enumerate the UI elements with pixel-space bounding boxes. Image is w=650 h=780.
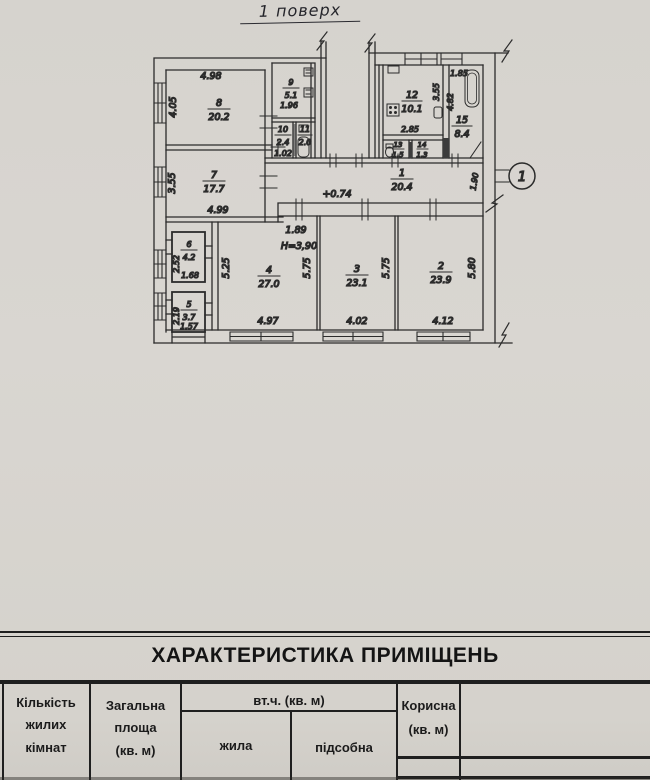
- dim-room2-right: 5.80: [467, 257, 478, 278]
- svg-text:1.5: 1.5: [392, 151, 404, 159]
- table-title: ХАРАКТЕРИСТИКА ПРИМІЩЕНЬ: [0, 644, 650, 668]
- floor-plan-drawing: 1 820.2 717.7 95.1 102.4 112.0 1210.1 13…: [0, 0, 650, 625]
- svg-text:4: 4: [266, 265, 272, 276]
- svg-text:7: 7: [211, 170, 217, 181]
- svg-text:27.0: 27.0: [258, 279, 279, 290]
- dim-room8-width: 4.98: [200, 71, 221, 82]
- dim-room10-sub: 1.02: [274, 149, 292, 158]
- svg-text:8: 8: [216, 98, 222, 109]
- svg-text:15: 15: [456, 115, 468, 126]
- svg-text:3.7: 3.7: [183, 313, 197, 322]
- dim-room6-width: 1.68: [181, 271, 199, 280]
- svg-text:5: 5: [186, 300, 191, 309]
- svg-text:23.1: 23.1: [346, 278, 367, 289]
- dim-room12-height: 3.55: [432, 83, 441, 101]
- dim-room5-width: 1.57: [180, 322, 199, 331]
- room-5-label: 53.7: [181, 300, 197, 322]
- svg-text:1: 1: [399, 168, 405, 179]
- room-1-label: 120.4: [391, 168, 413, 193]
- table-hline-useful-1: [396, 756, 650, 759]
- room-14-label: 141.3: [416, 141, 428, 159]
- stove-icon: [387, 104, 399, 116]
- room-2-label: 223.9: [430, 261, 452, 286]
- svg-text:2.4: 2.4: [277, 138, 290, 147]
- room-3-label: 323.1: [346, 264, 368, 289]
- cabinet-icon: [388, 66, 399, 73]
- section-marker-label: 1: [518, 170, 526, 185]
- svg-text:11: 11: [300, 125, 310, 134]
- dim-room2-width: 4.12: [432, 316, 453, 327]
- svg-text:6: 6: [186, 240, 191, 249]
- dim-room7-width: 4.99: [207, 205, 228, 216]
- dim-room3-right: 5.75: [381, 257, 392, 278]
- table-top-border: [0, 680, 650, 684]
- table-vline: [459, 683, 461, 780]
- window-icons: [154, 53, 470, 341]
- dim-room12-width: 2.85: [401, 125, 419, 134]
- ceiling-height-mark: Н=3,90: [281, 241, 317, 252]
- svg-text:12: 12: [406, 90, 418, 101]
- dim-room8-height: 4.05: [168, 96, 179, 117]
- stairwell-walls: [321, 42, 375, 158]
- dim-room4-right: 5.75: [302, 257, 313, 278]
- dim-room9-width: 1.96: [280, 101, 298, 110]
- svg-text:14: 14: [418, 141, 427, 149]
- table-col-useful: Корисна (кв. м): [398, 694, 459, 742]
- svg-text:5.1: 5.1: [285, 91, 298, 100]
- svg-text:20.4: 20.4: [391, 182, 412, 193]
- dim-room7-height: 3.55: [167, 172, 178, 193]
- svg-text:1.3: 1.3: [416, 151, 427, 159]
- svg-text:10.1: 10.1: [401, 104, 422, 115]
- room-9-label: 95.1: [283, 78, 299, 100]
- dim-room3-width: 4.02: [346, 316, 367, 327]
- table-col-auxiliary: підсобна: [292, 737, 396, 759]
- dim-room4-width: 4.97: [257, 316, 278, 327]
- svg-text:3: 3: [354, 264, 360, 275]
- dim-corridor-width: 1.90: [469, 172, 481, 191]
- level-mark: +0.74: [322, 189, 351, 200]
- section-marker: 1: [495, 163, 535, 189]
- room-11-label: 112.0: [298, 125, 312, 147]
- dim-room15-width: 1.85: [450, 69, 468, 78]
- dimension-labels: 4.98 4.05 3.55 4.99 1.96 1.02 2.85 3.55 …: [167, 69, 481, 331]
- room-13-label: 131.5: [392, 141, 404, 159]
- sink-icon: [434, 107, 442, 118]
- room-10-label: 102.4: [275, 125, 291, 147]
- svg-text:20.2: 20.2: [208, 112, 229, 123]
- svg-text:9: 9: [288, 78, 293, 87]
- title-band-top-line: [0, 631, 650, 633]
- table-col-living: жила: [182, 735, 290, 757]
- room-15-label: 158.4: [452, 115, 472, 140]
- svg-text:2: 2: [438, 261, 444, 272]
- door-opening-ticks: [260, 116, 458, 220]
- svg-text:17.7: 17.7: [203, 184, 224, 195]
- step-dim: 1.89: [285, 225, 306, 236]
- svg-text:8.4: 8.4: [454, 129, 469, 140]
- dim-room4-left: 5.25: [221, 257, 232, 278]
- dim-room6-height: 2.52: [172, 255, 181, 273]
- table-col-total-area: Загальна площа (кв. м): [91, 695, 180, 762]
- dim-room15-height: 4.82: [446, 93, 455, 111]
- svg-text:23.9: 23.9: [430, 275, 451, 286]
- title-band-inner-line: [0, 636, 650, 637]
- room-7-label: 717.7: [203, 170, 225, 195]
- svg-text:13: 13: [394, 141, 403, 149]
- scanned-document-page: 1 поверх: [0, 0, 650, 780]
- table-col-rooms-count: Кількість жилих кімнат: [3, 692, 89, 759]
- svg-text:4.2: 4.2: [183, 253, 196, 262]
- svg-text:10: 10: [278, 125, 288, 134]
- room-4-label: 427.0: [258, 265, 280, 290]
- table-col-including: вт.ч. (кв. м): [182, 690, 396, 712]
- room-6-label: 64.2: [181, 240, 197, 262]
- room-12-label: 1210.1: [401, 90, 422, 115]
- svg-text:2.0: 2.0: [299, 138, 312, 147]
- room-8-label: 820.2: [208, 98, 230, 123]
